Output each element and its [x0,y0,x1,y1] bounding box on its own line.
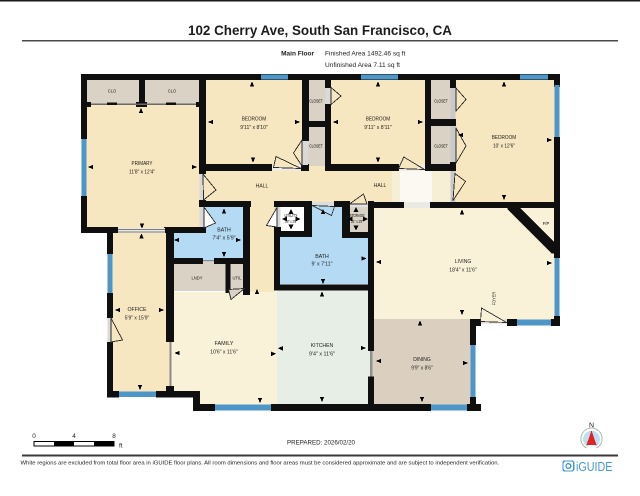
svg-text:3'8" x 2'6": 3'8" x 2'6" [285,219,297,224]
svg-text:5'9" x 15'9": 5'9" x 15'9" [125,316,150,322]
svg-text:FOYER: FOYER [492,291,497,305]
svg-text:PRIMARY: PRIMARY [132,161,153,167]
svg-text:HALL: HALL [374,183,387,189]
svg-text:LIVING: LIVING [455,259,472,265]
svg-text:BEDROOM: BEDROOM [366,117,391,123]
svg-text:CLOSET: CLOSET [309,144,323,149]
svg-text:HALL: HALL [256,184,269,190]
svg-text:CLO: CLO [108,89,117,94]
svg-text:8: 8 [112,433,116,440]
svg-text:18'4" x 11'6": 18'4" x 11'6" [449,268,477,274]
svg-text:F/P: F/P [543,221,550,226]
svg-text:3'1" x 2'9": 3'1" x 2'9" [351,219,363,224]
svg-text:iGUIDE: iGUIDE [576,459,613,474]
svg-text:9'4" x 11'6": 9'4" x 11'6" [309,352,335,358]
svg-text:PREPARED: 2026/02/20: PREPARED: 2026/02/20 [287,440,356,447]
svg-text:7'4" x 5'9": 7'4" x 5'9" [213,236,236,242]
svg-text:10' x 12'6": 10' x 12'6" [493,144,515,150]
svg-text:LNDY: LNDY [192,276,203,281]
svg-text:11'8" x 12'4": 11'8" x 12'4" [129,170,155,176]
svg-text:9' x 7'11": 9' x 7'11" [312,262,333,268]
svg-text:Unfinished Area 7.11 sq ft: Unfinished Area 7.11 sq ft [325,62,400,69]
svg-text:Main Floor: Main Floor [281,51,314,58]
svg-text:9'11" x 8'11": 9'11" x 8'11" [364,125,392,131]
svg-text:BATH: BATH [217,228,231,234]
svg-text:Finished Area 1492.46 sq ft: Finished Area 1492.46 sq ft [325,51,405,58]
svg-text:CLO: CLO [168,89,177,94]
svg-text:FAMILY: FAMILY [215,341,234,347]
svg-text:CLOSET: CLOSET [434,99,448,104]
svg-text:STORAGE: STORAGE [350,213,365,218]
svg-text:UTILITY: UTILITY [285,213,298,218]
svg-text:DINING: DINING [413,357,431,363]
svg-text:BEDROOM: BEDROOM [492,135,517,141]
svg-text:102 Cherry Ave, South San Fran: 102 Cherry Ave, South San Francisco, CA [188,23,452,38]
svg-text:UTIL: UTIL [233,276,242,281]
svg-text:ft: ft [119,443,123,450]
svg-text:OFFICE: OFFICE [128,307,147,313]
svg-text:KITCHEN: KITCHEN [311,343,334,349]
svg-text:White regions are excluded fro: White regions are excluded from total fl… [21,461,500,467]
svg-text:BEDROOM: BEDROOM [242,117,267,123]
svg-text:9'9" x 8'6": 9'9" x 8'6" [411,366,433,372]
svg-text:CLOSET: CLOSET [434,144,448,149]
svg-text:0: 0 [32,433,36,440]
svg-text:4: 4 [72,433,76,440]
svg-text:9'11" x 8'10": 9'11" x 8'10" [240,125,268,131]
svg-text:10'6" x 11'6": 10'6" x 11'6" [210,350,238,356]
svg-text:CLOSET: CLOSET [309,99,323,104]
svg-text:BATH: BATH [315,254,329,260]
